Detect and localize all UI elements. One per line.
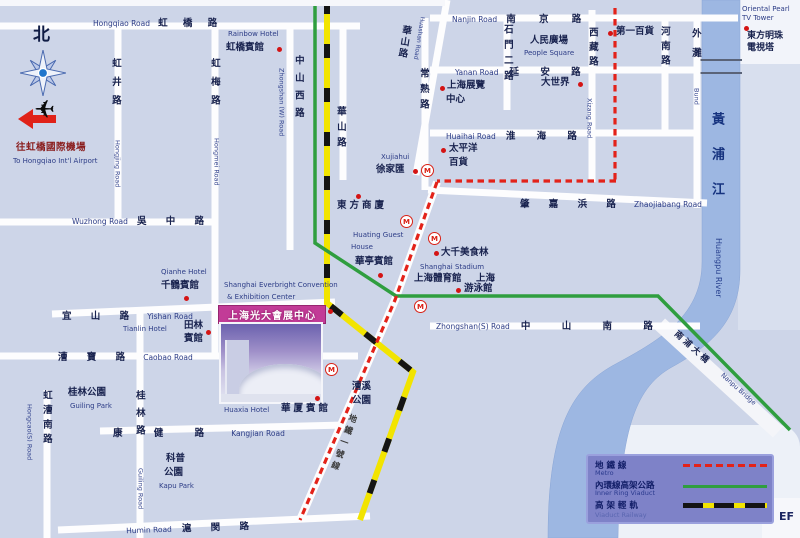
pearl-tower-en1: Oriental Pearl [742, 5, 790, 13]
corner-text: EF [779, 511, 794, 524]
road-label-yishan: 宜 山 路 Yishan Road [62, 305, 193, 323]
road-label-caobao: 漕 寶 路 Caobao Road [58, 346, 193, 364]
huating-zh: 華亭賓館 [355, 257, 393, 268]
xujiahui-zh: 徐家匯 [376, 165, 405, 176]
legend-metro-en: Metro [595, 469, 614, 477]
road-label-guilin-en: Guiling Road [136, 468, 143, 509]
rainbow-hotel-dot [277, 47, 282, 52]
pearl-tower-en2: TV Tower [742, 14, 774, 22]
huaxia-hotel-zh: 華厦賓館 [281, 404, 331, 415]
pacific-store-zh2: 百貨 [449, 158, 468, 169]
center-photo-base [221, 394, 321, 402]
road-label-hongjing-zh: 虹井路 [109, 58, 120, 114]
center-name-en2: & Exhibition Center [227, 293, 295, 301]
huangpu-river-zh: 黃浦江 [708, 112, 723, 217]
road-label-wuzhong: Wuzhong Road 吳 中 路 [72, 210, 212, 228]
metro-station-2: M [428, 232, 441, 245]
tianlin-hotel-dot [206, 330, 211, 335]
metro-station-1: M [400, 215, 413, 228]
exhibition-center-zh2: 中心 [446, 95, 465, 106]
road-label-guilin-zh: 桂林路 [133, 390, 144, 443]
airplane-icon: ✈ [34, 96, 55, 125]
compass-icon [20, 50, 66, 96]
kapu-park-en: Kapu Park [159, 482, 194, 490]
caoxi-park-zh2: 公園 [352, 396, 371, 407]
metro-station-4: M [325, 363, 338, 376]
xujiahui-en: Xujiahui [381, 153, 409, 161]
legend-ring-en: Inner Ring Viaduct [595, 489, 655, 497]
road-label-hongcao-en: Hongcao(S) Road [25, 404, 32, 460]
road-label-xizang-en: Xizang Road [585, 98, 592, 138]
airport-label-zh: 往虹橋國際機場 [16, 143, 86, 154]
road-label-changshu: 常熟路 [417, 68, 428, 115]
stadium-zh1: 上海體育館 [414, 274, 462, 285]
xujiahui-dot [413, 169, 418, 174]
guilin-park-en: Guiling Park [70, 402, 112, 410]
rainbow-hotel-en: Rainbow Hotel [228, 30, 279, 38]
legend-rail-en: Viaduct Railway [595, 511, 647, 519]
stadium-zh3: 游泳館 [464, 284, 493, 295]
people-square-en: People Square [524, 49, 574, 57]
tianlin-hotel-zh2: 賓館 [184, 334, 203, 345]
no1-store-zh: 第一百貨 [616, 27, 654, 38]
qianhe-hotel-dot [184, 296, 189, 301]
pacific-store-zh1: 太平洋 [449, 144, 478, 155]
road-label-hongcao-zh: 虹漕南路 [40, 390, 51, 448]
road-label-huashan-v: 華山路 [334, 106, 345, 153]
daqian-dot [434, 251, 439, 256]
tianlin-hotel-en: Tianlin Hotel [123, 325, 167, 333]
legend-rail-zh: 高 架 輕 軌 [595, 499, 638, 511]
qianhe-hotel-zh: 千鶴賓館 [161, 281, 199, 292]
road-label-nanjing: Nanjin Road 南 京 路 [452, 8, 591, 26]
dongfang-store-dot [356, 194, 361, 199]
center-dot [328, 309, 333, 314]
road-label-huaihai: Huaihai Road 淮 海 路 [446, 125, 586, 143]
legend-ring-swatch [683, 485, 767, 488]
metro-station-3: M [414, 300, 427, 313]
huaxia-hotel-en: Huaxia Hotel [224, 406, 269, 414]
road-label-hongmei-en: Hongmei Road [212, 138, 219, 186]
daqian-zh: 大千美食林 [441, 248, 489, 259]
pearl-tower-zh2: 電視塔 [747, 43, 774, 53]
road-label-zhongshan-w-zh: 中山西路 [292, 55, 303, 125]
huaxia-hotel-dot [315, 396, 320, 401]
qianhe-hotel-en: Qianhe Hotel [161, 268, 207, 276]
swimming-dot [456, 288, 461, 293]
dongfang-store-zh: 東方商廈 [337, 201, 387, 212]
huangpu-river-en: Huangpu River [714, 238, 723, 298]
caoxi-park-zh1: 漕溪 [352, 382, 371, 393]
huating-en1: Huating Guest [353, 231, 403, 239]
rainbow-hotel-zh: 虹橋賓館 [226, 43, 264, 54]
pearl-tower-zh1: 東方明珠 [747, 31, 783, 41]
road-label-hongqiao: Hongqiao Road 虹 橋 路 [93, 12, 223, 30]
huating-dot [378, 273, 383, 278]
road-label-bund-zh: 外灘 [689, 28, 700, 67]
road-label-henan: 河南路 [658, 26, 669, 70]
great-world-zh: 大世界 [541, 78, 570, 89]
exhibition-center-dot [440, 86, 445, 91]
legend: 地 鐵 線 Metro 內環線高架公路 Inner Ring Viaduct 高… [586, 454, 774, 524]
center-name-en1: Shanghai Everbright Convention [224, 281, 338, 289]
kapu-park-zh2: 公園 [164, 468, 183, 479]
exhibition-center-zh1: 上海展覽 [447, 81, 485, 92]
road-label-hongjing-en: Hongjing Road [113, 140, 120, 187]
kapu-park-zh1: 科普 [166, 454, 185, 465]
huating-en2: House [351, 243, 373, 251]
pacific-store-dot [441, 148, 446, 153]
tianlin-hotel-zh1: 田林 [184, 321, 203, 332]
guilin-park-zh: 桂林公園 [68, 388, 106, 399]
road-label-hongmei-zh: 虹梅路 [208, 58, 219, 114]
people-square-zh: 人民廣場 [530, 36, 568, 47]
map-edge-top [0, 0, 445, 6]
center-photo [219, 322, 323, 404]
road-label-bund-en: Bund [692, 88, 699, 105]
road-label-xizang-zh: 西藏路 [586, 27, 597, 71]
north-label: 北 [33, 26, 50, 46]
great-world-dot [578, 82, 583, 87]
road-label-zhongshan-s: Zhongshan(S) Road 中 山 南 路 [436, 315, 667, 333]
airport-label-en: To Hongqiao Int'l Airport [13, 157, 98, 165]
legend-rail-swatch [683, 503, 767, 508]
no1-store-dot [608, 31, 613, 36]
legend-metro-swatch [683, 464, 767, 467]
road-label-zhaojiabang: 肇 嘉 浜 路 Zhaojiabang Road [520, 193, 702, 211]
metro-station-xujiahui: M [421, 164, 434, 177]
shanghai-map: Hongqiao Road 虹 橋 路 北 ✈ 往虹橋國際機場 To Hongq… [0, 0, 800, 538]
stadium-en: Shanghai Stadium [420, 263, 484, 271]
road-label-zhongshan-w-en: Zhongshan (W) Road [277, 68, 284, 136]
